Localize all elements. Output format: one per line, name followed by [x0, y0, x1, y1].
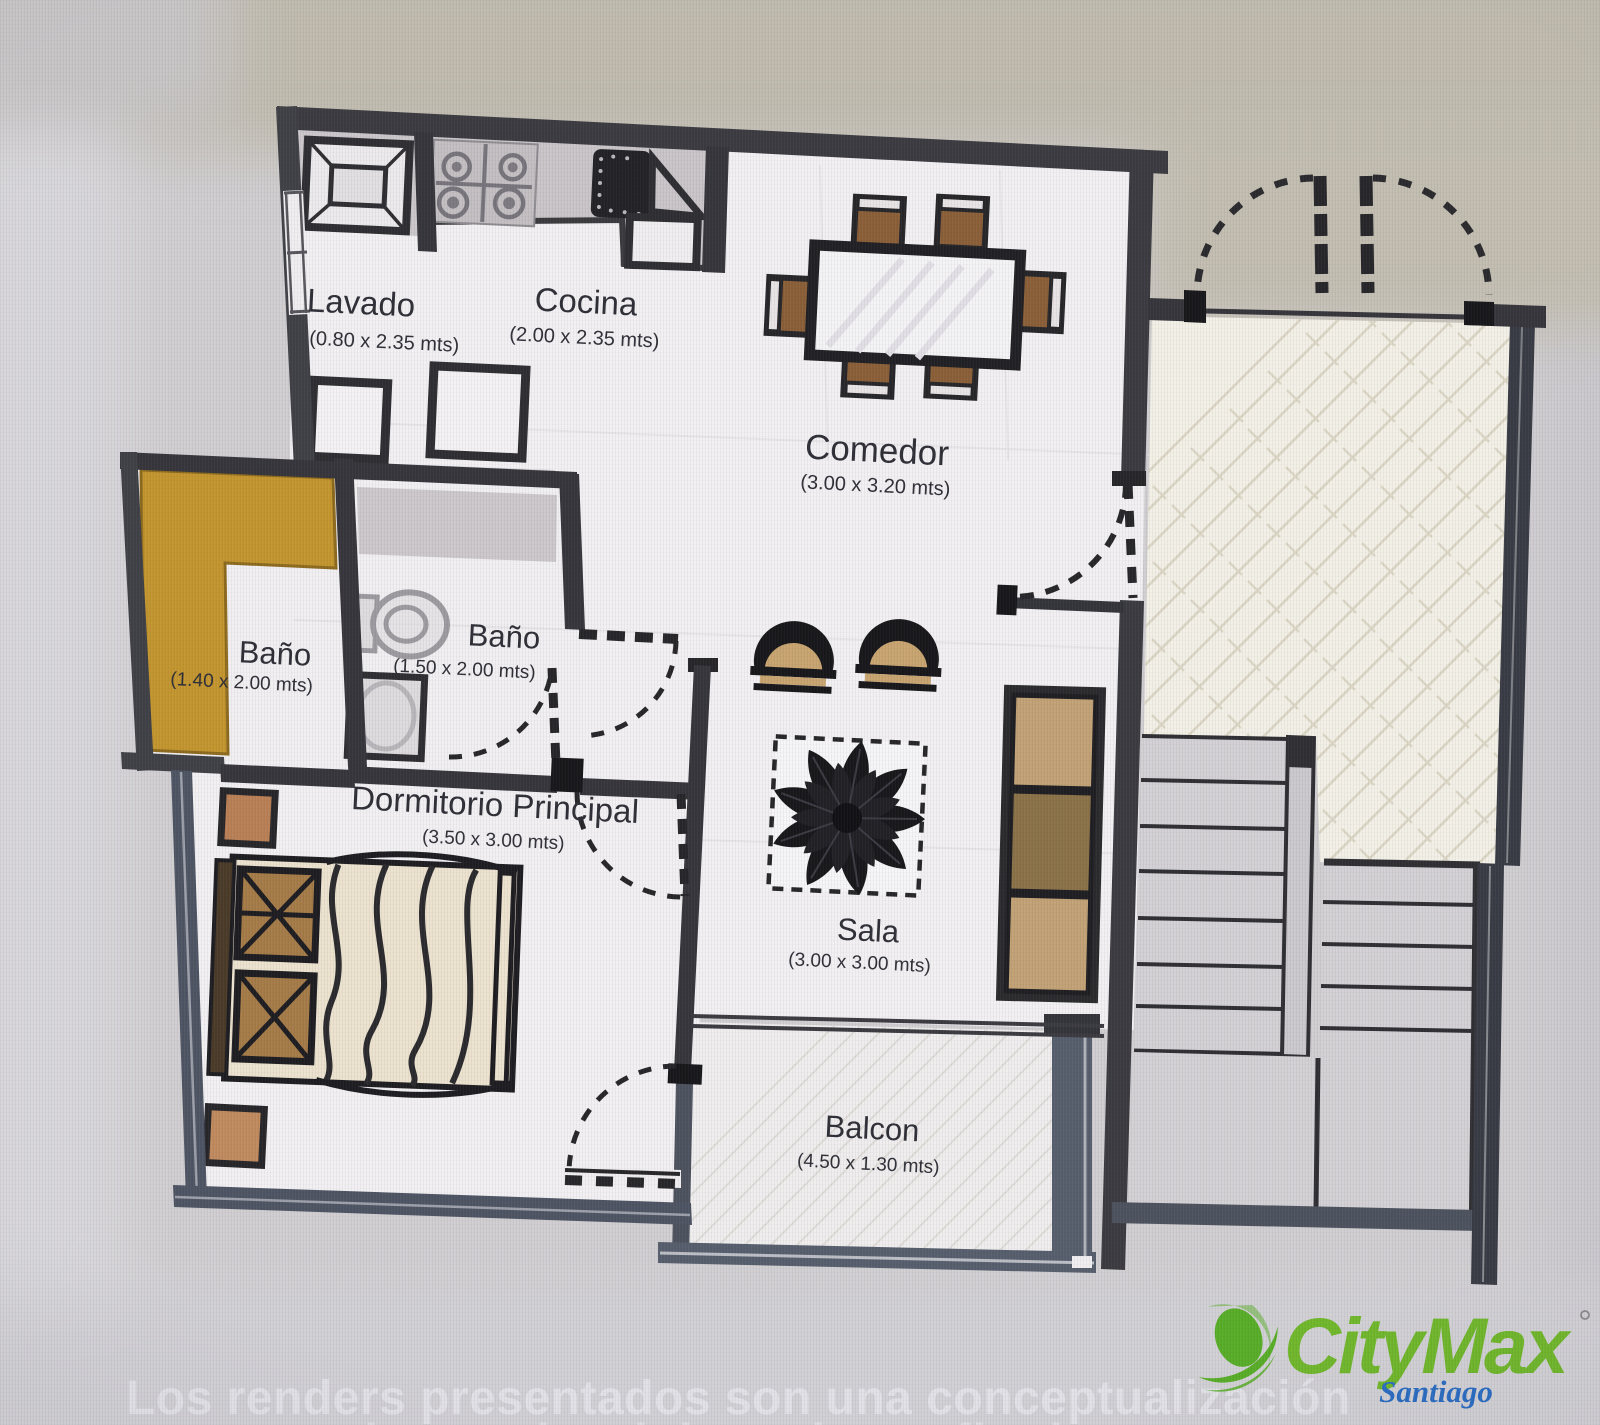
- svg-text:Santiago: Santiago: [1379, 1374, 1493, 1409]
- svg-text:Sala: Sala: [836, 912, 900, 950]
- svg-text:y pueden variar del producto f: y pueden variar del producto final: [210, 1415, 1065, 1425]
- svg-text:Cocina: Cocina: [534, 281, 639, 323]
- svg-text:Comedor: Comedor: [804, 428, 950, 474]
- svg-text:Balcon: Balcon: [824, 1109, 920, 1149]
- svg-text:Lavado: Lavado: [306, 281, 416, 323]
- svg-text:Baño: Baño: [238, 634, 312, 672]
- svg-text:Baño: Baño: [467, 617, 541, 655]
